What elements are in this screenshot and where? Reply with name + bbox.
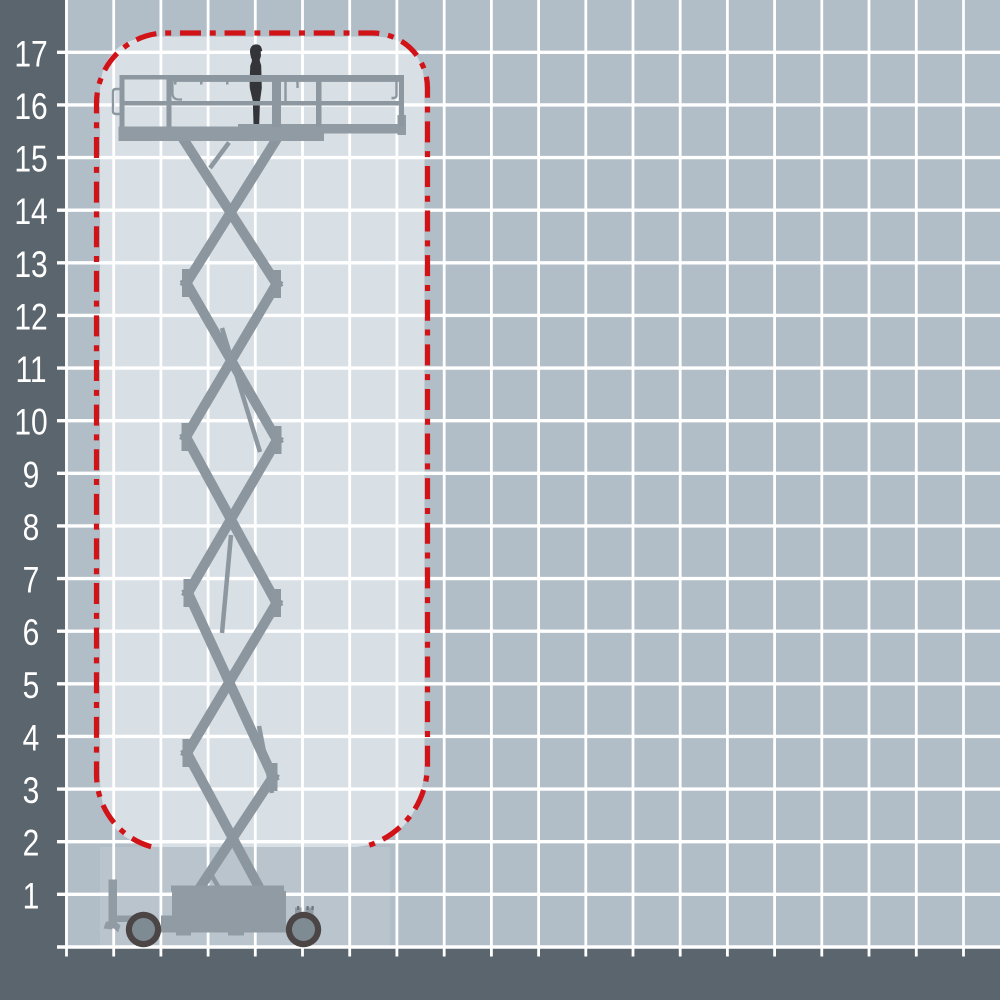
svg-text:14: 14 bbox=[14, 191, 47, 233]
svg-text:13: 13 bbox=[14, 244, 47, 286]
svg-text:11: 11 bbox=[15, 349, 46, 391]
svg-text:15: 15 bbox=[14, 138, 47, 180]
svg-text:9: 9 bbox=[23, 454, 40, 496]
svg-text:12: 12 bbox=[14, 296, 47, 338]
svg-text:3: 3 bbox=[23, 770, 40, 812]
svg-text:1: 1 bbox=[23, 875, 40, 917]
svg-text:8: 8 bbox=[23, 507, 40, 549]
svg-text:2: 2 bbox=[23, 823, 40, 865]
svg-text:6: 6 bbox=[23, 612, 40, 654]
svg-text:4: 4 bbox=[23, 717, 40, 759]
svg-text:17: 17 bbox=[14, 33, 47, 75]
svg-text:7: 7 bbox=[23, 559, 40, 601]
svg-text:10: 10 bbox=[14, 402, 47, 444]
svg-text:5: 5 bbox=[23, 665, 40, 707]
svg-text:16: 16 bbox=[14, 86, 47, 128]
